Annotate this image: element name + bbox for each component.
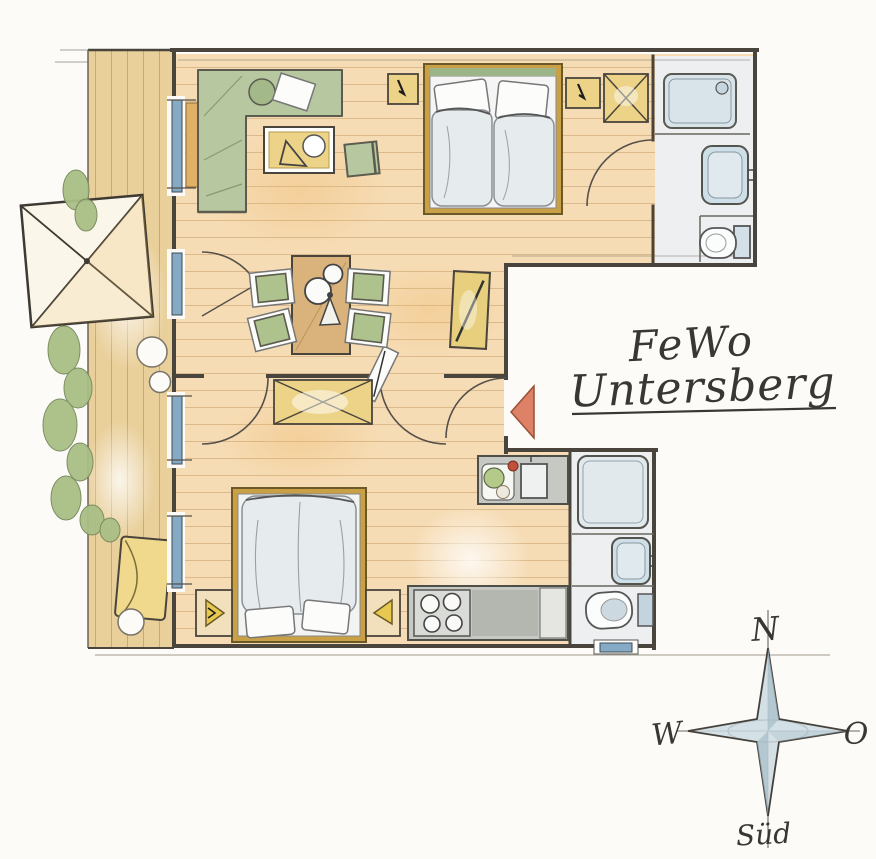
nightstand-icon [566, 78, 600, 108]
hall-shelf-icon [450, 271, 490, 349]
construction-ticks [55, 50, 88, 62]
double-bed-icon [424, 64, 562, 214]
compass-west-label: W [650, 715, 686, 753]
nightstand-icon [366, 590, 400, 636]
sink-icon [612, 538, 655, 584]
dining-table-icon [292, 256, 350, 354]
vegetable [484, 468, 504, 488]
kitchen-sink-counter [478, 456, 568, 504]
dining-chair-icon [249, 269, 294, 307]
floor-plan-drawing: FeWo Untersberg N W O Süd [0, 0, 876, 859]
sofa-cushion [249, 79, 275, 105]
shower-icon [664, 74, 736, 128]
nightstand-icon [196, 590, 232, 636]
toilet-icon [700, 226, 750, 258]
plan-title: FeWo Untersberg [569, 316, 837, 418]
kitchen-sink [521, 464, 547, 498]
sun-lounger-icon [115, 536, 172, 620]
pillow [302, 600, 351, 635]
terrace-side-table [118, 609, 144, 635]
armchair-icon [344, 141, 379, 176]
compass-south-label: Süd [735, 817, 792, 853]
sink-icon [702, 146, 754, 204]
headboard [430, 68, 556, 76]
toilet-icon [585, 591, 653, 630]
floor-plan-page: FeWo Untersberg N W O Süd [0, 0, 876, 859]
wardrobe-icon [604, 74, 648, 122]
tomato [508, 461, 518, 471]
nightstand-icon [388, 74, 418, 104]
stove-icon [414, 590, 470, 636]
double-bed-icon [232, 488, 366, 642]
bathroom-2-window [594, 640, 638, 654]
duvet [432, 110, 492, 206]
dining-chair-icon [345, 309, 391, 348]
duvet [494, 116, 554, 206]
pillow [245, 606, 295, 638]
coffee-table-icon [264, 127, 334, 173]
plate [324, 265, 343, 284]
dining-chair-icon [346, 269, 390, 306]
entrance-arrow-icon [511, 386, 534, 438]
shower-icon [578, 456, 648, 528]
stove-counter [408, 586, 568, 640]
living-room-window [167, 96, 200, 196]
compass-north-label: N [749, 609, 782, 649]
compass-east-label: O [844, 717, 869, 752]
wardrobe-icon [274, 380, 372, 424]
compass-rose: N W O Süd [650, 609, 868, 852]
onion [497, 486, 510, 499]
